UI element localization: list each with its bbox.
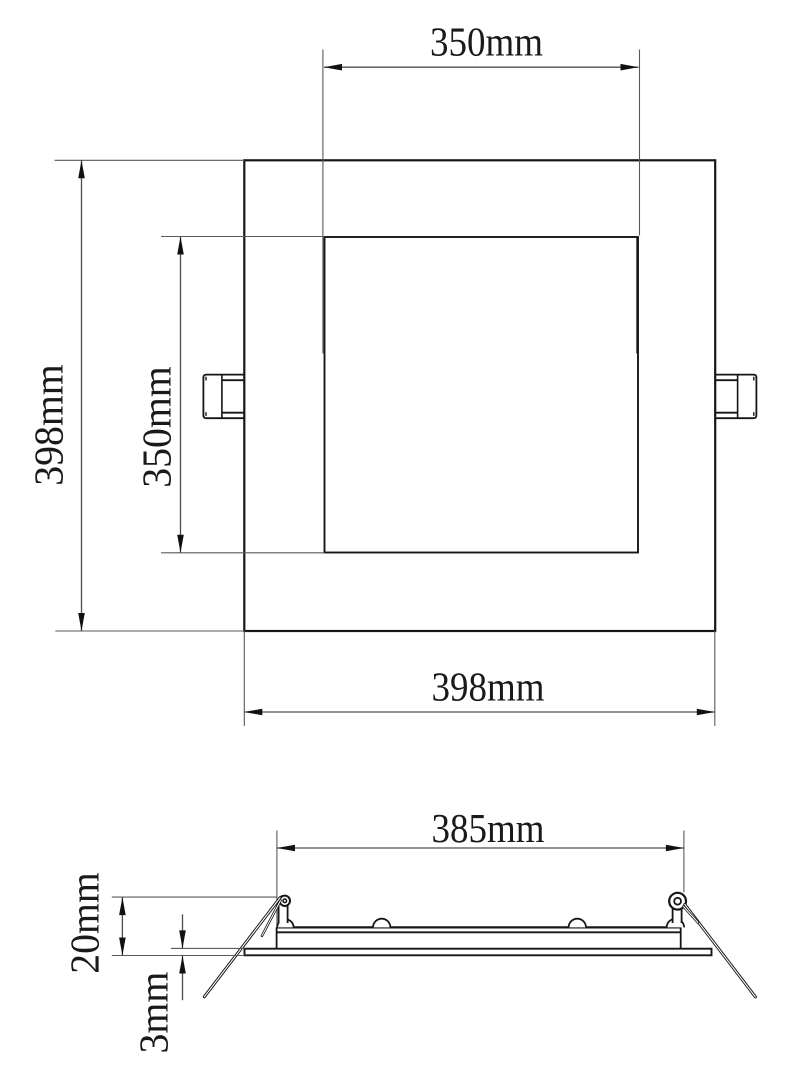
svg-text:3mm: 3mm — [131, 972, 177, 1054]
svg-text:350mm: 350mm — [133, 366, 179, 488]
svg-text:20mm: 20mm — [62, 872, 108, 974]
svg-text:350mm: 350mm — [430, 18, 543, 64]
svg-text:398mm: 398mm — [432, 663, 545, 709]
svg-text:398mm: 398mm — [25, 364, 71, 486]
svg-text:385mm: 385mm — [432, 805, 545, 851]
